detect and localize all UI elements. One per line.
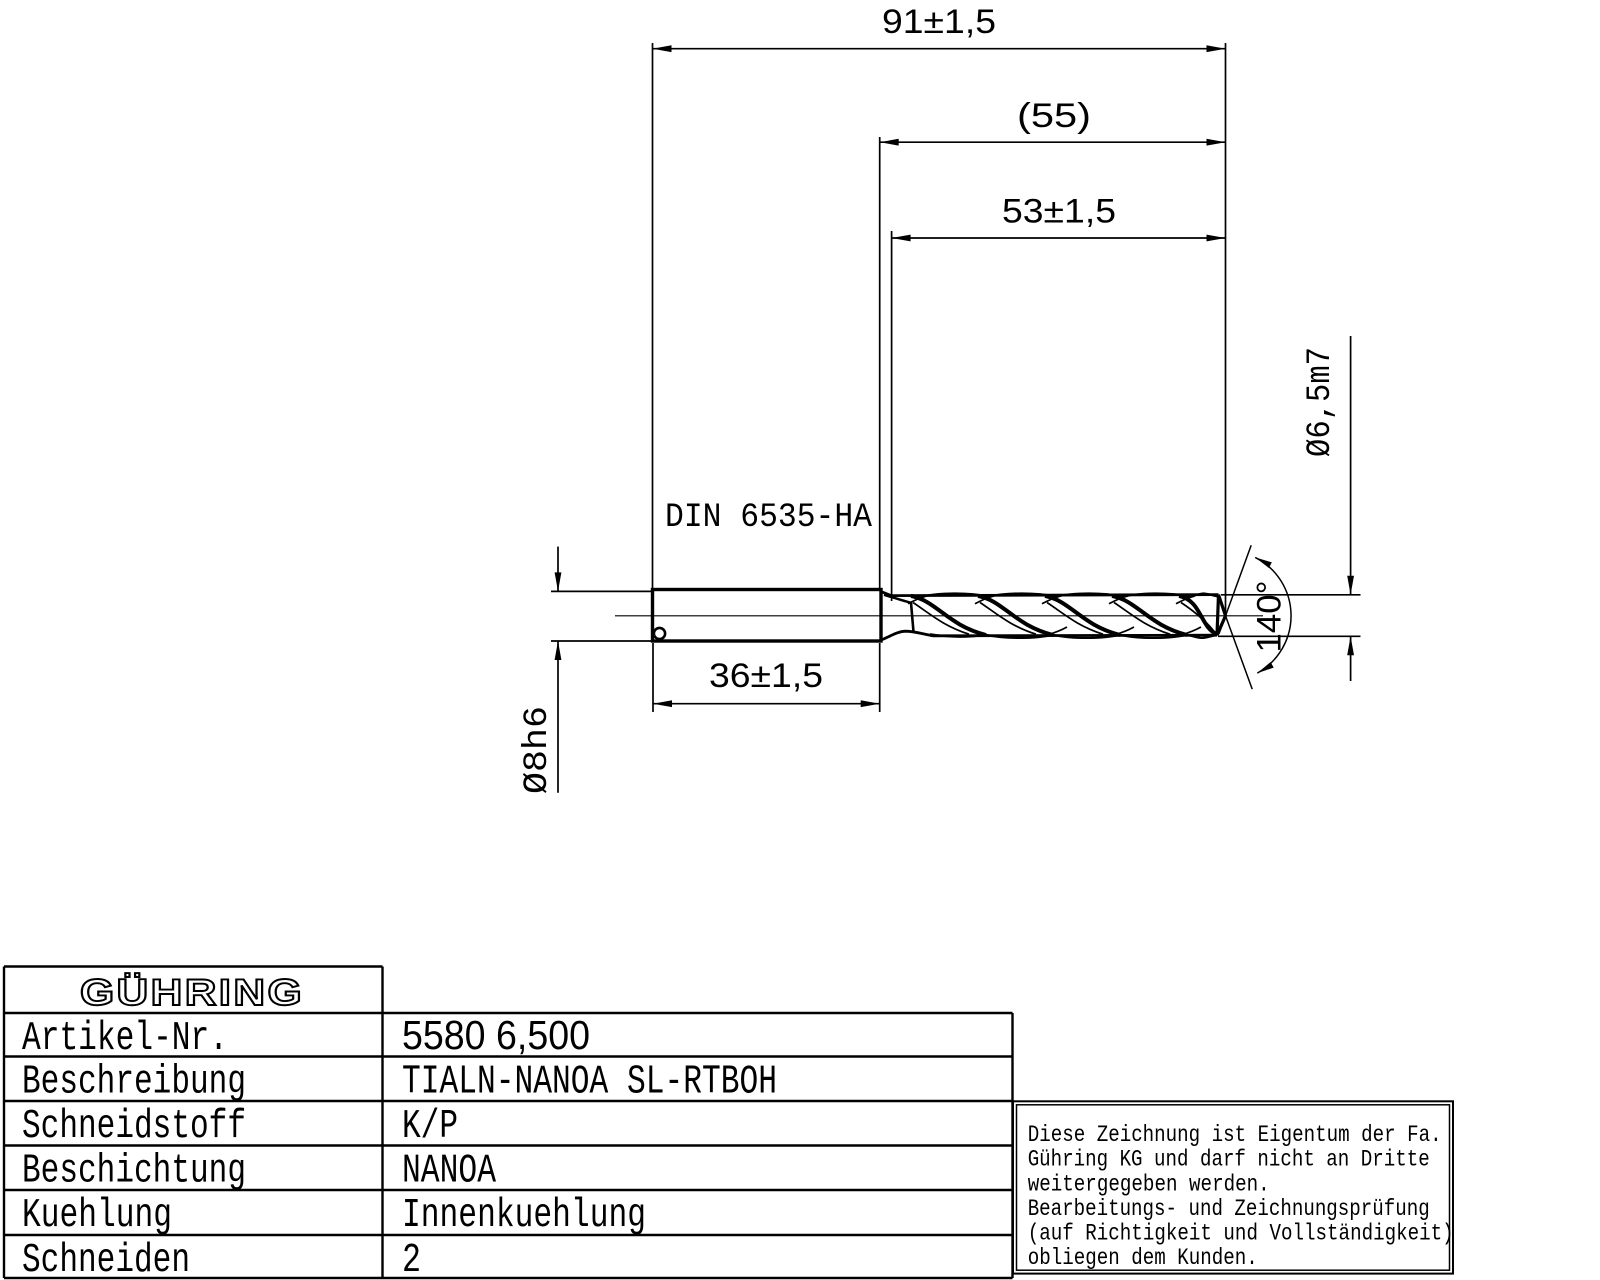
svg-text:91±1,5: 91±1,5	[882, 3, 996, 41]
svg-text:140°: 140°	[1251, 581, 1289, 653]
svg-text:(55): (55)	[1017, 97, 1091, 135]
svg-text:(auf Richtigkeit und Vollständ: (auf Richtigkeit und Vollständigkeit)	[1028, 1221, 1454, 1247]
svg-text:Ø8h6: Ø8h6	[519, 706, 557, 794]
svg-text:Beschichtung: Beschichtung	[22, 1149, 246, 1195]
svg-text:NANOA: NANOA	[402, 1149, 496, 1195]
svg-text:K/P: K/P	[402, 1104, 458, 1150]
svg-text:Diese Zeichnung ist Eigentum d: Diese Zeichnung ist Eigentum der Fa.	[1028, 1122, 1442, 1148]
svg-text:Innenkuehlung: Innenkuehlung	[402, 1193, 646, 1239]
svg-text:Kuehlung: Kuehlung	[22, 1193, 172, 1239]
svg-text:Schneidstoff: Schneidstoff	[22, 1104, 246, 1150]
svg-text:DIN 6535-HA: DIN 6535-HA	[665, 499, 873, 537]
svg-text:weitergegeben werden.: weitergegeben werden.	[1028, 1171, 1270, 1197]
svg-text:Bearbeitungs- und Zeichnungspr: Bearbeitungs- und Zeichnungsprüfung	[1028, 1196, 1430, 1222]
svg-text:TIALN-NANOA SL-RTBOH: TIALN-NANOA SL-RTBOH	[402, 1060, 777, 1106]
svg-text:Beschreibung: Beschreibung	[22, 1060, 246, 1106]
svg-text:Gühring KG und darf nicht an D: Gühring KG und darf nicht an Dritte	[1028, 1147, 1430, 1173]
svg-text:53±1,5: 53±1,5	[1002, 193, 1116, 231]
svg-text:Ø6,5m7: Ø6,5m7	[1302, 347, 1340, 457]
svg-text:2: 2	[402, 1238, 421, 1280]
svg-text:Artikel-Nr.: Artikel-Nr.	[22, 1016, 228, 1062]
svg-text:GÜHRING: GÜHRING	[80, 972, 304, 1013]
svg-text:5580 6,500: 5580 6,500	[402, 1012, 590, 1058]
svg-text:Schneiden: Schneiden	[22, 1238, 190, 1280]
svg-text:36±1,5: 36±1,5	[709, 657, 823, 695]
svg-text:obliegen dem Kunden.: obliegen dem Kunden.	[1028, 1245, 1258, 1271]
